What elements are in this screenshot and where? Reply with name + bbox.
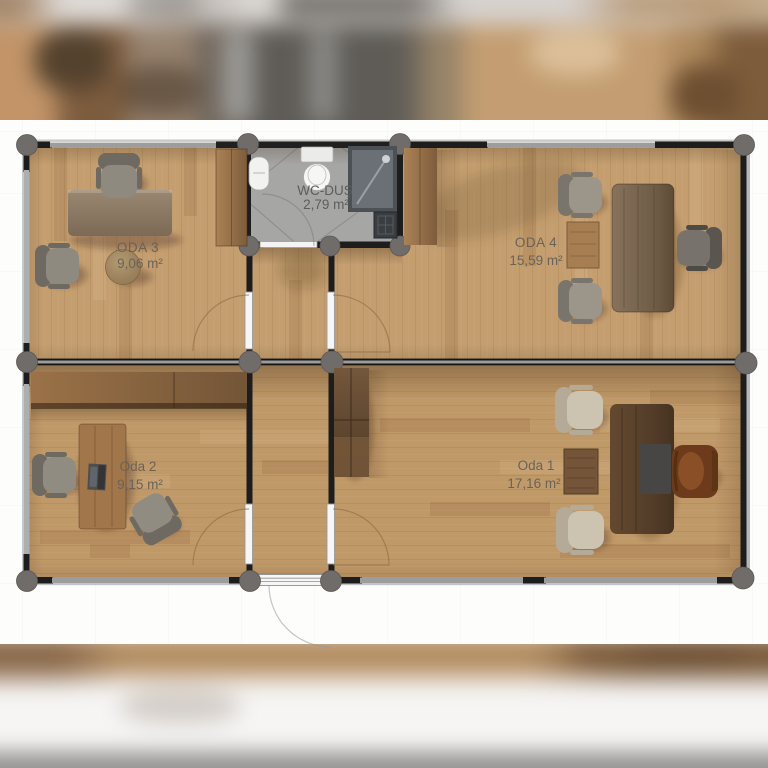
- svg-text:WC-DUŞ: WC-DUŞ: [297, 183, 353, 198]
- svg-text:17,16 m²: 17,16 m²: [507, 476, 561, 491]
- svg-text:15,59 m²: 15,59 m²: [509, 253, 563, 268]
- svg-text:Oda 1: Oda 1: [518, 458, 555, 473]
- svg-text:ODA 3: ODA 3: [117, 240, 159, 255]
- svg-text:9,15 m²: 9,15 m²: [117, 477, 163, 492]
- svg-text:9,06 m²: 9,06 m²: [117, 256, 163, 271]
- svg-text:ODA 4: ODA 4: [515, 235, 557, 250]
- svg-text:Oda 2: Oda 2: [120, 459, 157, 474]
- svg-text:2,79 m²: 2,79 m²: [303, 197, 349, 212]
